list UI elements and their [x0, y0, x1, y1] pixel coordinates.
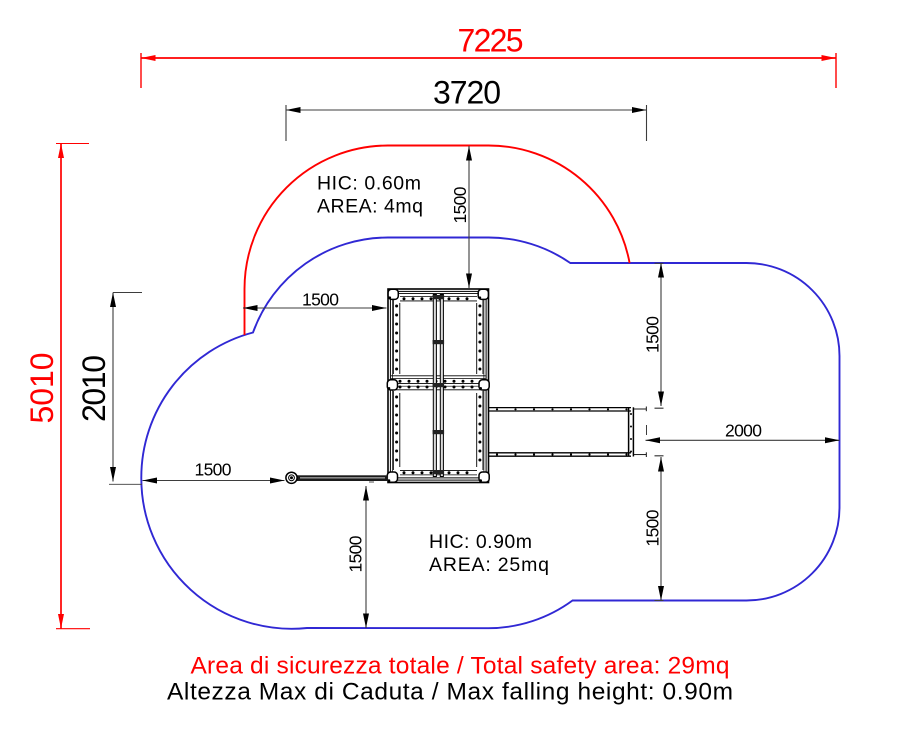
- svg-text:2000: 2000: [725, 421, 762, 441]
- svg-text:7225: 7225: [458, 23, 524, 59]
- svg-text:Area di sicurezza totale / Tot: Area di sicurezza totale / Total safety …: [191, 653, 730, 680]
- svg-text:AREA: 4mq: AREA: 4mq: [317, 196, 423, 218]
- svg-text:1500: 1500: [450, 186, 470, 223]
- svg-text:3720: 3720: [433, 75, 501, 111]
- svg-text:HIC: 0.90m: HIC: 0.90m: [429, 531, 532, 553]
- svg-text:1500: 1500: [302, 290, 339, 310]
- svg-text:2010: 2010: [76, 355, 112, 422]
- svg-text:1500: 1500: [643, 509, 663, 546]
- svg-text:1500: 1500: [346, 535, 366, 572]
- svg-text:AREA: 25mq: AREA: 25mq: [429, 554, 549, 576]
- svg-text:Altezza Max di Caduta / Max fa: Altezza Max di Caduta / Max falling heig…: [167, 679, 733, 706]
- svg-text:5010: 5010: [24, 353, 60, 424]
- svg-text:1500: 1500: [643, 316, 663, 353]
- svg-text:HIC: 0.60m: HIC: 0.60m: [317, 173, 421, 195]
- svg-text:1500: 1500: [195, 460, 232, 480]
